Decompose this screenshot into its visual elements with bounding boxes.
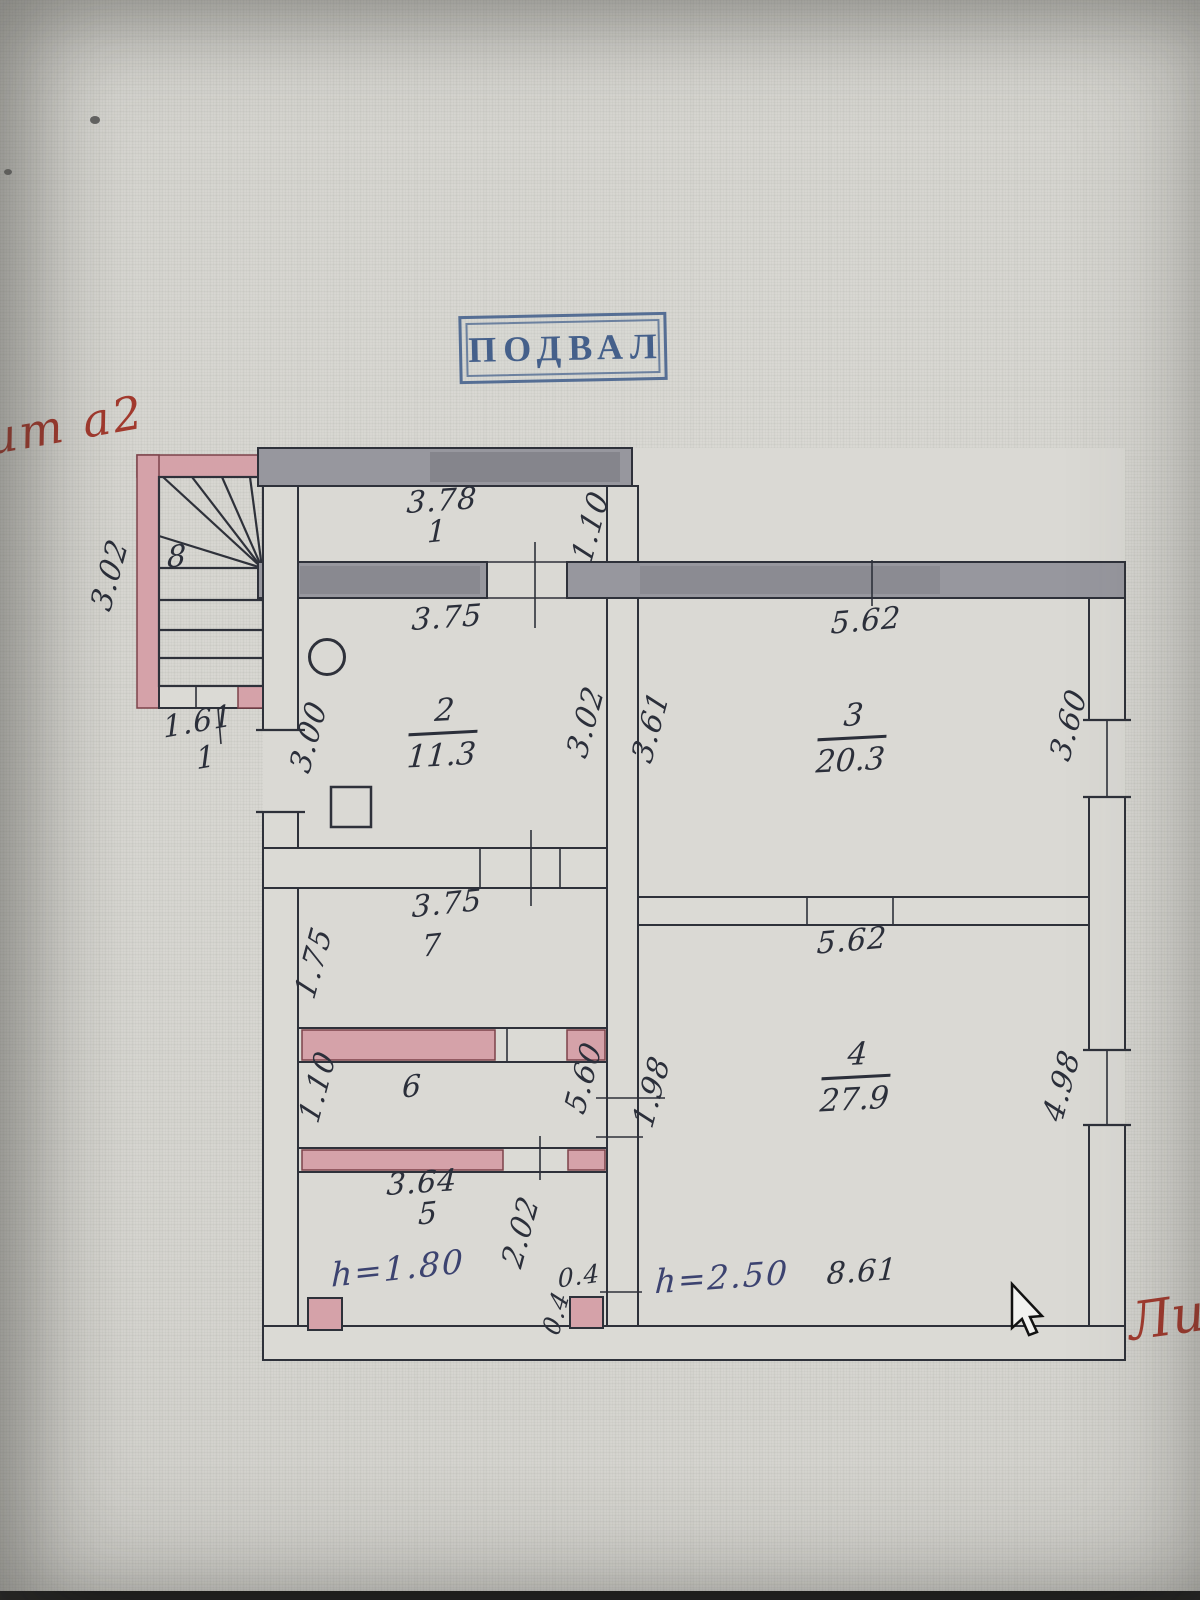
room2-top-dim: 3.75 (411, 598, 483, 638)
room4-number: 4 (821, 1034, 893, 1080)
room5-number: 5 (418, 1195, 439, 1232)
room6-number: 6 (402, 1068, 423, 1105)
room4-area: 27.9 (819, 1077, 891, 1120)
room7-number: 7 (422, 927, 443, 964)
room4-top-dim: 5.62 (816, 920, 888, 961)
room4-bottom-dim: 8.61 (826, 1252, 898, 1292)
sheet-annotation: Ли (1124, 1283, 1200, 1353)
room8-number: 8 (167, 538, 188, 575)
room8-bottom-number: 1 (195, 739, 217, 778)
room1-number: 1 (427, 513, 448, 550)
pier-width-dim: 0.4 (558, 1258, 601, 1293)
room3-area: 20.3 (815, 738, 887, 781)
room4-number-area: 4 27.9 (819, 1034, 894, 1119)
room3-top-dim: 5.62 (830, 600, 902, 641)
room7-top-dim: 3.75 (411, 883, 482, 926)
basement-stamp: ПОДВАЛ (458, 312, 667, 384)
room2-area: 11.3 (406, 733, 478, 776)
staircase-annex-walls (137, 455, 265, 708)
room3-number: 3 (817, 695, 889, 741)
stamp-inner-border (465, 319, 660, 377)
room2-number-area: 2 11.3 (406, 690, 481, 775)
room2-number: 2 (408, 690, 480, 736)
screen-bottom-edge (0, 1591, 1200, 1600)
room3-number-area: 3 20.3 (815, 695, 890, 780)
scan-specks (4, 116, 100, 175)
floor-plan-drawing (0, 0, 1200, 1600)
screenshot-root: { "stamp": { "text": "ПОДВАЛ", "color": … (0, 0, 1200, 1600)
